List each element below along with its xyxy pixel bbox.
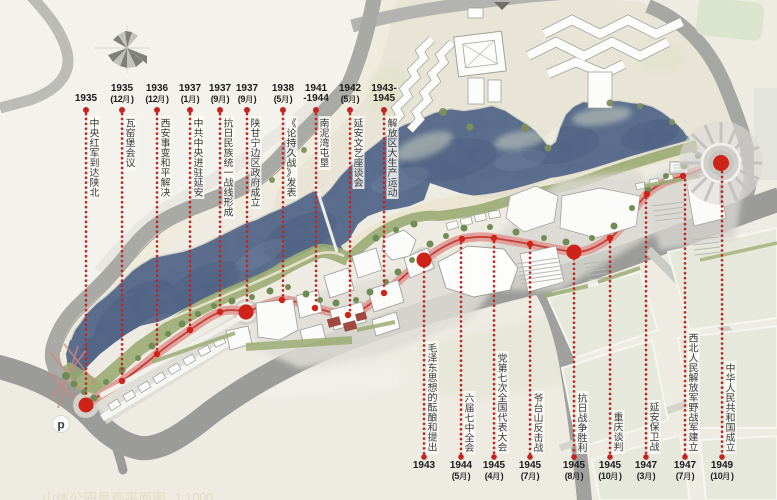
svg-text:1:1000: 1:1000 [175,491,213,500]
svg-text:p: p [57,418,64,432]
